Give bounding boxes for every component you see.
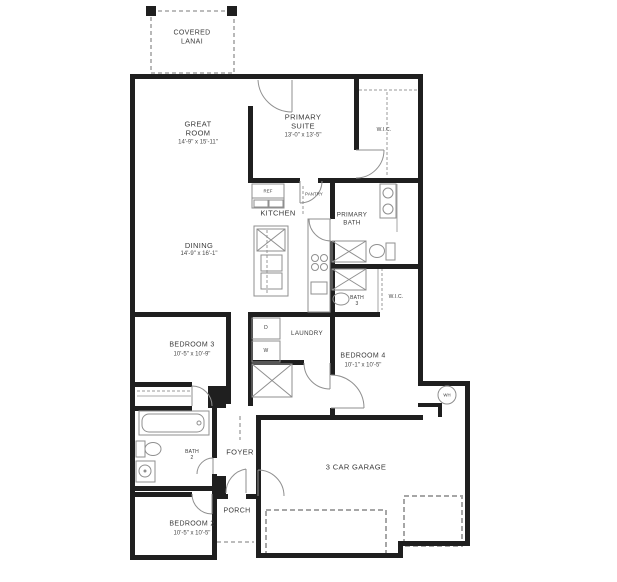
- appliance-label-washer: W: [264, 348, 269, 354]
- room-label-dining: DINING 14'-9" x 16'-1": [181, 241, 218, 259]
- room-label-bedroom-4: BEDROOM 4 10'-1" x 10'-5": [340, 352, 385, 369]
- room-name: GREAT: [178, 119, 218, 128]
- room-name: BATH: [337, 219, 368, 227]
- primary-bath-sinks: [380, 184, 396, 218]
- floor-plan: COVERED LANAI GREAT ROOM 14'-9" x 15'-11…: [0, 0, 617, 582]
- room-label-foyer: FOYER: [226, 447, 254, 456]
- room-name: 3 CAR GARAGE: [326, 462, 386, 471]
- room-label-wic-top: W.I.C.: [377, 127, 392, 133]
- room-name: KITCHEN: [260, 208, 295, 217]
- room-name: DINING: [181, 241, 218, 250]
- room-name: 3: [350, 301, 364, 307]
- room-name: BEDROOM 4: [340, 352, 385, 361]
- bath2-tub: [139, 411, 209, 435]
- room-label-wic-mid: W.I.C.: [389, 294, 404, 300]
- room-label-primary-suite: PRIMARY SUITE 13'-0" x 13'-5": [285, 112, 322, 139]
- walls: [130, 6, 470, 560]
- room-name: LANAI: [173, 38, 210, 47]
- room-name: LAUNDRY: [291, 330, 323, 338]
- room-name: REF: [264, 188, 273, 193]
- room-name: COVERED: [173, 29, 210, 38]
- room-dims: 14'-9" x 15'-11": [178, 139, 218, 147]
- room-name: BEDROOM 2: [169, 520, 214, 529]
- room-label-kitchen: KITCHEN: [260, 208, 295, 217]
- room-label-garage: 3 CAR GARAGE: [326, 462, 386, 471]
- linen-closet: [252, 364, 292, 397]
- fixture-name: WH: [443, 392, 450, 397]
- room-name: 2: [185, 455, 199, 461]
- room-dims: 14'-9" x 16'-1": [181, 251, 218, 259]
- bath3-tub: [332, 269, 366, 290]
- room-label-covered-lanai: COVERED LANAI: [173, 29, 210, 47]
- appliance-letter: W: [264, 348, 269, 354]
- room-label-bedroom-2: BEDROOM 2 10'-5" x 10'-5": [169, 520, 214, 537]
- fixture-label-water-heater: WH: [443, 392, 450, 397]
- room-label-bedroom-3: BEDROOM 3 10'-5" x 10'-9": [169, 341, 214, 358]
- room-dims: 10'-1" x 10'-5": [340, 362, 385, 370]
- range-counter: [308, 219, 330, 312]
- room-name: W.I.C.: [377, 127, 392, 133]
- room-label-bath-3: BATH 3: [350, 295, 364, 308]
- room-label-laundry: LAUNDRY: [291, 330, 323, 338]
- room-label-bath-2: BATH 2: [185, 449, 199, 462]
- kitchen-island: [254, 226, 288, 296]
- room-label-porch: PORCH: [223, 508, 250, 517]
- appliance-label-dryer: D: [264, 325, 268, 331]
- room-name: BEDROOM 3: [169, 341, 214, 350]
- room-name: PRIMARY: [285, 112, 322, 121]
- room-name: PRIMARY: [337, 211, 368, 219]
- room-dims: 13'-0" x 13'-5": [285, 132, 322, 140]
- room-name: PORCH: [223, 508, 250, 517]
- bath2-toilet: [136, 441, 161, 457]
- primary-bath-toilet: [370, 243, 396, 260]
- appliance-letter: D: [264, 325, 268, 331]
- bath3-sink: [333, 293, 349, 305]
- room-label-primary-bath: PRIMARY BATH: [337, 211, 368, 227]
- room-label-pantry: PANTRY: [305, 191, 323, 196]
- room-dims: 10'-5" x 10'-9": [169, 351, 214, 359]
- room-name: PANTRY: [305, 191, 323, 196]
- primary-shower: [332, 241, 366, 262]
- room-label-great-room: GREAT ROOM 14'-9" x 15'-11": [178, 119, 218, 146]
- room-name: W.I.C.: [389, 294, 404, 300]
- room-label-ref: REF: [264, 188, 273, 193]
- room-name: ROOM: [178, 129, 218, 138]
- bath2-sink: [136, 461, 155, 482]
- room-name: SUITE: [285, 122, 322, 131]
- garage-door-dashed: [266, 496, 462, 557]
- room-dims: 10'-5" x 10'-5": [169, 530, 214, 538]
- room-name: FOYER: [226, 447, 254, 456]
- plan-linework: [0, 0, 617, 582]
